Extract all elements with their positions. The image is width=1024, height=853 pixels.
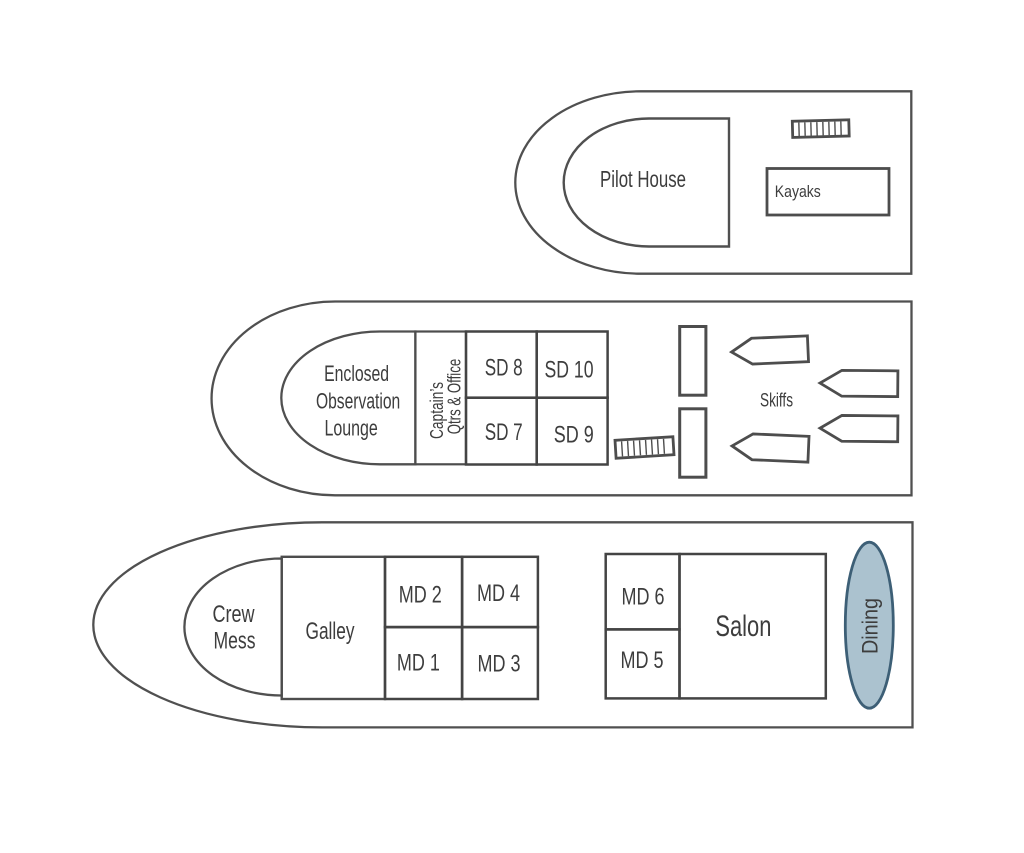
svg-text:MD 1: MD 1	[397, 650, 440, 677]
svg-text:Observation: Observation	[316, 389, 400, 414]
svg-text:MD 6: MD 6	[622, 583, 665, 610]
svg-text:Mess: Mess	[214, 627, 256, 654]
svg-text:Salon: Salon	[715, 610, 771, 643]
svg-text:SD 7: SD 7	[485, 419, 523, 446]
svg-text:Galley: Galley	[306, 618, 356, 645]
svg-text:MD 2: MD 2	[399, 581, 442, 608]
svg-text:SD 10: SD 10	[545, 356, 594, 383]
svg-text:Dining: Dining	[858, 598, 883, 654]
svg-text:MD 3: MD 3	[478, 651, 521, 678]
svg-text:Kayaks: Kayaks	[775, 182, 821, 201]
svg-text:Qtrs & Office: Qtrs & Office	[445, 359, 465, 435]
svg-text:Skiffs: Skiffs	[760, 391, 793, 412]
svg-text:SD 8: SD 8	[485, 354, 523, 381]
svg-text:Crew: Crew	[213, 601, 255, 628]
svg-text:MD 4: MD 4	[477, 580, 520, 607]
svg-text:Enclosed: Enclosed	[324, 361, 389, 386]
svg-text:MD 5: MD 5	[621, 647, 664, 674]
svg-text:Lounge: Lounge	[324, 415, 377, 440]
svg-text:Pilot House: Pilot House	[600, 166, 686, 192]
svg-text:SD 9: SD 9	[554, 421, 594, 448]
